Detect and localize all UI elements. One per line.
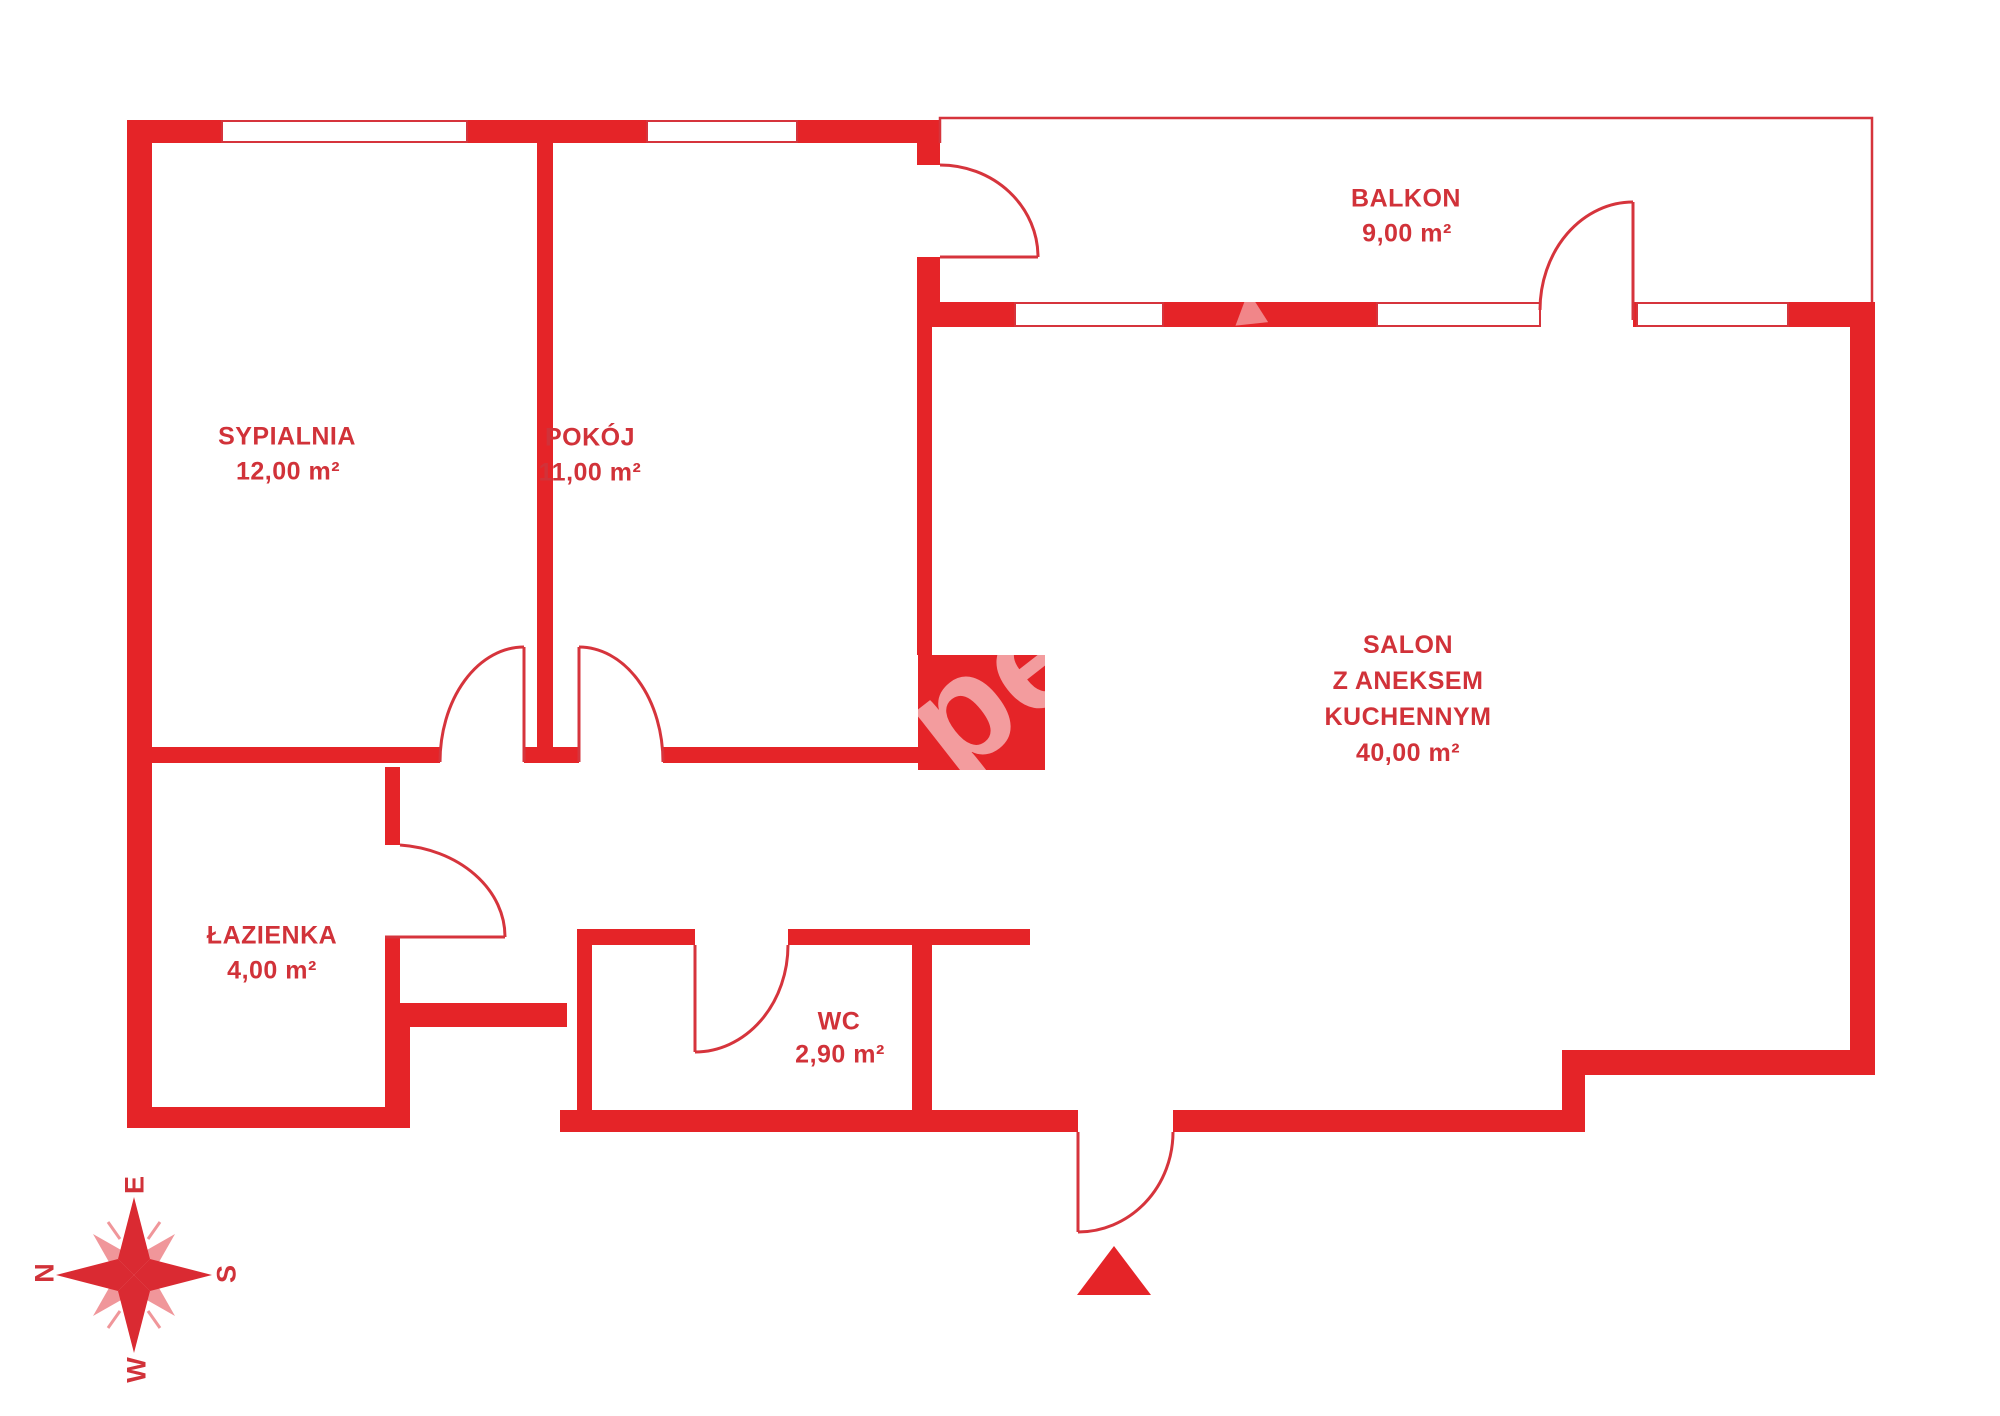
room-area-lazienka: 4,00 m² xyxy=(227,957,317,986)
room-area-sypialnia: 12,00 m² xyxy=(236,458,340,487)
wall-segment xyxy=(917,257,940,327)
door-arc xyxy=(1078,1132,1173,1232)
compass-rose-icon xyxy=(56,1197,212,1353)
window xyxy=(1377,303,1540,326)
floor-plan: SYPIALNIA 12,00 m² POKÓJ 11,00 m² BALKON… xyxy=(0,0,2000,1416)
room-area-pokoj: 11,00 m² xyxy=(539,459,642,488)
floor-plan-drawing xyxy=(0,0,2000,1416)
salon-label-line1: SALON xyxy=(1325,627,1492,663)
wall-segment xyxy=(940,302,1015,327)
wall-segment xyxy=(127,747,440,763)
door-arc xyxy=(940,165,1038,257)
window xyxy=(1015,303,1163,326)
window xyxy=(647,121,797,142)
wall-block xyxy=(918,655,1045,770)
door-arc xyxy=(579,647,663,762)
salon-area: 40,00 m² xyxy=(1325,735,1492,771)
wall-segment xyxy=(537,143,553,762)
wall-segment xyxy=(400,1003,567,1027)
entrance-marker-icon xyxy=(1077,1246,1151,1295)
wall-segment xyxy=(788,929,1030,945)
room-label-balkon: BALKON xyxy=(1351,185,1461,214)
windows xyxy=(222,121,1788,326)
wall-segment xyxy=(912,945,932,1110)
wall-segment xyxy=(1163,302,1377,327)
room-area-wc: 2,90 m² xyxy=(795,1041,885,1070)
wall-segment xyxy=(917,143,940,165)
wall-segment xyxy=(1562,1050,1585,1132)
wall-segment xyxy=(577,929,592,1115)
room-label-sypialnia: SYPIALNIA xyxy=(218,423,356,452)
compass-letter-w: W xyxy=(122,1357,153,1382)
compass-letter-e: E xyxy=(120,1176,151,1194)
wall-segment xyxy=(127,120,152,1128)
door-arc xyxy=(695,945,788,1052)
room-label-pokoj: POKÓJ xyxy=(545,424,635,453)
wall-segment xyxy=(797,120,940,143)
door-arc xyxy=(400,845,505,937)
walls xyxy=(127,120,1875,1132)
compass-letter-s: S xyxy=(212,1265,243,1283)
wall-segment xyxy=(467,120,647,143)
wall-segment xyxy=(1850,302,1875,1075)
wall-segment xyxy=(663,747,918,763)
wall-segment xyxy=(577,929,695,945)
wall-segment xyxy=(128,1107,410,1128)
door-arc xyxy=(1540,202,1633,310)
room-area-balkon: 9,00 m² xyxy=(1362,220,1452,249)
window xyxy=(1637,303,1788,326)
room-label-wc: WC xyxy=(818,1008,861,1037)
wall-segment xyxy=(560,1110,1078,1132)
wall-segment xyxy=(385,937,400,1003)
salon-label-line3: KUCHENNYM xyxy=(1325,699,1492,735)
compass-letter-n: N xyxy=(30,1263,61,1283)
salon-label-line2: Z ANEKSEM xyxy=(1325,663,1492,699)
wall-segment xyxy=(1562,1050,1875,1075)
window xyxy=(222,121,467,142)
wall-segment xyxy=(524,747,579,763)
wall-segment xyxy=(917,327,932,655)
wall-segment xyxy=(385,767,400,845)
room-label-lazienka: ŁAZIENKA xyxy=(207,922,337,951)
door-arc xyxy=(440,647,524,762)
room-label-salon: SALON Z ANEKSEM KUCHENNYM 40,00 m² xyxy=(1325,627,1492,771)
wall-segment xyxy=(1173,1110,1562,1132)
